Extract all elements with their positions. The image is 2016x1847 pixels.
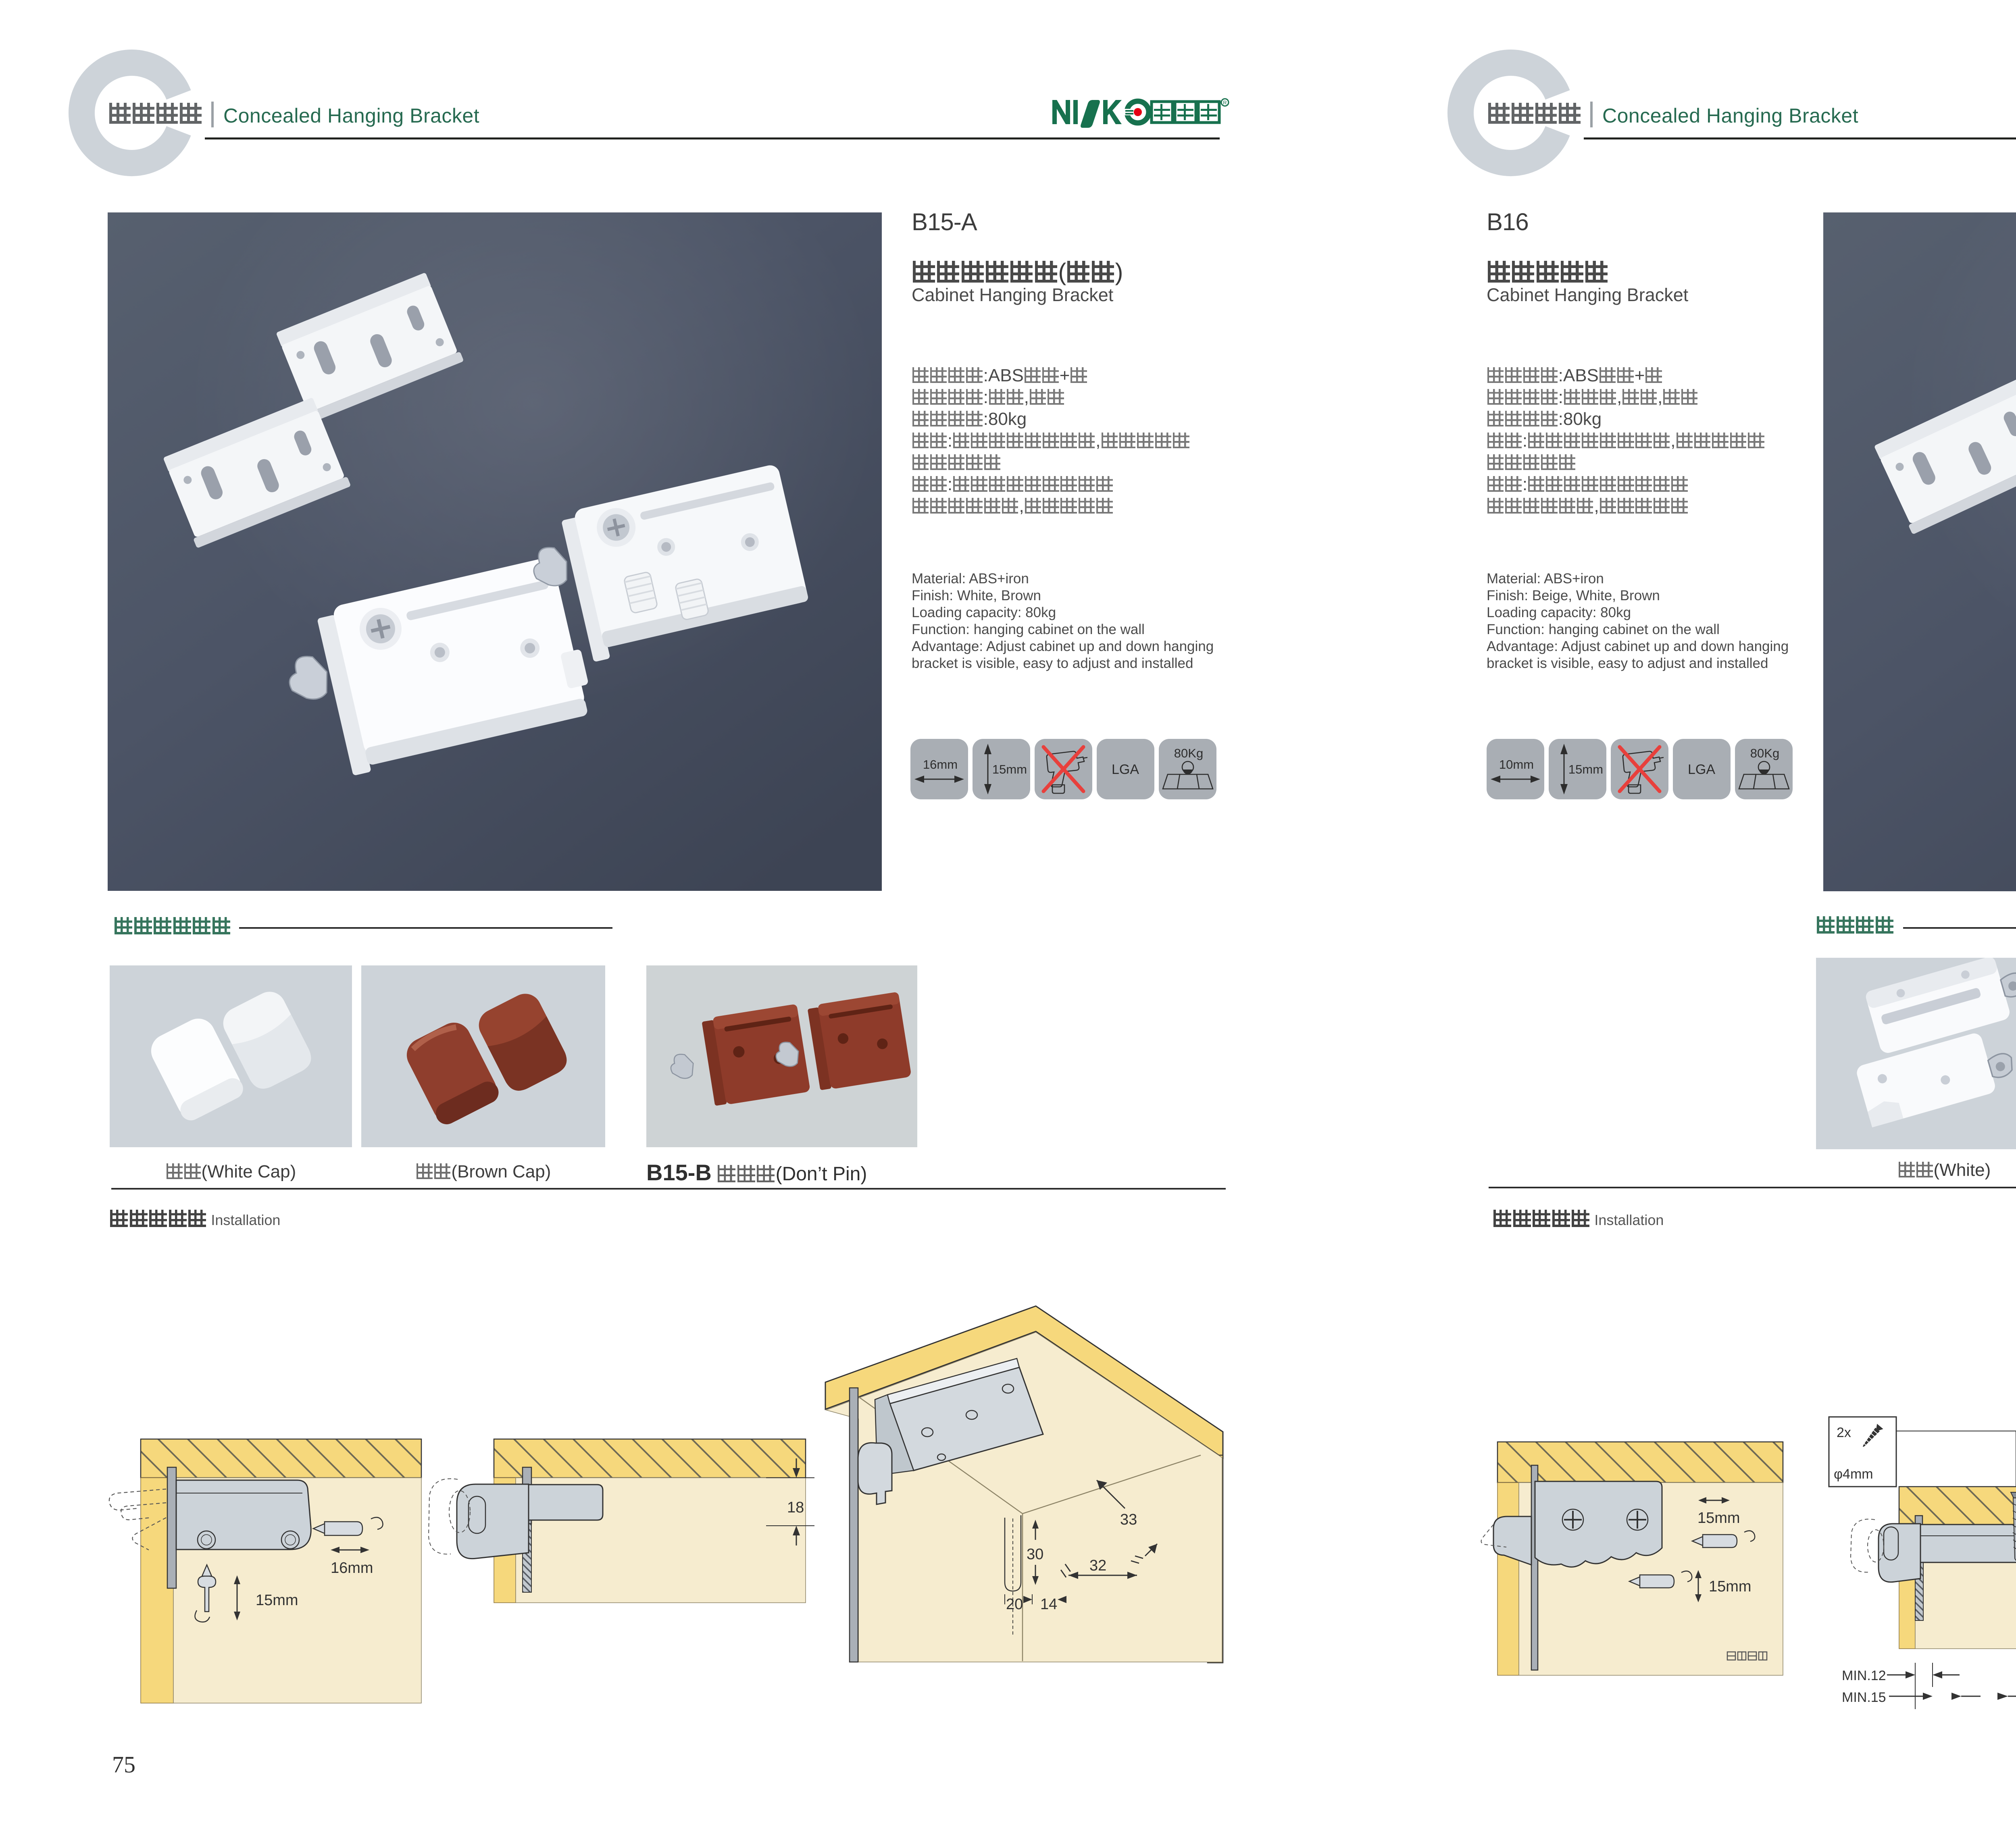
svg-text:16mm: 16mm <box>331 1560 373 1577</box>
svg-text:33: 33 <box>1120 1511 1137 1528</box>
svg-text:80Kg: 80Kg <box>1174 746 1203 760</box>
svg-text:15mm: 15mm <box>1709 1578 1752 1595</box>
svg-text:14: 14 <box>1040 1596 1057 1613</box>
svg-text:15mm: 15mm <box>256 1592 298 1609</box>
svg-text:10mm: 10mm <box>1499 757 1534 772</box>
svg-text:15mm: 15mm <box>1697 1510 1740 1527</box>
svg-text:φ4mm: φ4mm <box>1834 1466 1873 1482</box>
svg-text:16mm: 16mm <box>923 757 958 772</box>
svg-text:20: 20 <box>1006 1596 1023 1613</box>
svg-text:32: 32 <box>1089 1557 1106 1574</box>
svg-text:15mm: 15mm <box>992 762 1027 776</box>
svg-text:18: 18 <box>787 1499 804 1516</box>
svg-text:80Kg: 80Kg <box>1750 746 1779 760</box>
svg-text:2x: 2x <box>1837 1425 1851 1440</box>
svg-text:LGA: LGA <box>1688 762 1715 777</box>
svg-text:15mm: 15mm <box>1568 762 1603 776</box>
svg-text:MIN.12: MIN.12 <box>1842 1668 1886 1683</box>
svg-text:MIN.15: MIN.15 <box>1842 1690 1886 1705</box>
svg-text:LGA: LGA <box>1112 762 1139 777</box>
svg-text:30: 30 <box>1027 1546 1043 1563</box>
svg-text:R: R <box>1223 100 1227 106</box>
